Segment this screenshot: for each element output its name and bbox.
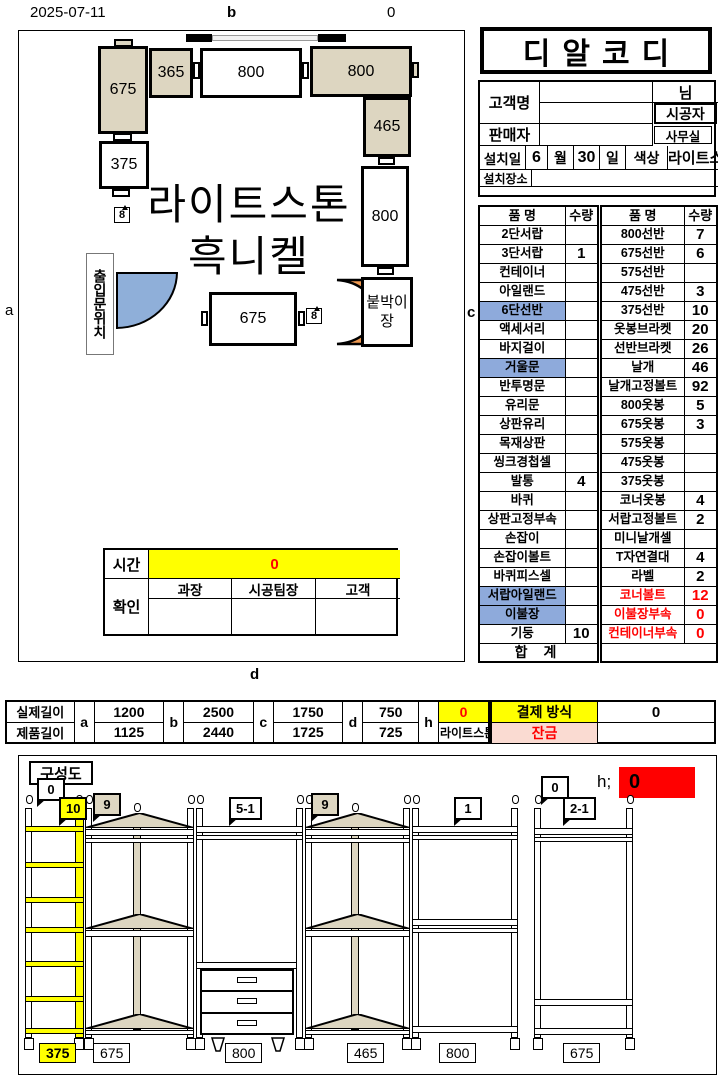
- cabinet-tab: [378, 157, 395, 165]
- item-qty: [565, 548, 598, 567]
- shelf-rail: [412, 919, 518, 926]
- item-name: 바지걸이: [479, 339, 565, 358]
- item-row: 라벨 2: [601, 567, 717, 586]
- item-qty: [684, 263, 717, 282]
- length-table: 실제길이 제품길이 a 1200 1125 b 2500 2440 c 1750…: [5, 700, 490, 744]
- unit-width-label: 800: [225, 1043, 262, 1063]
- item-qty: 26: [684, 339, 717, 358]
- item-row: 675선반 6: [601, 244, 717, 263]
- plan-unit-675-bottom: 675: [209, 292, 297, 346]
- builtin-closet-label-line2: 장: [380, 312, 394, 332]
- items-table-left: 품 명 수량 2단서랍 3단서랍 1 컨테이너: [478, 205, 599, 663]
- item-row: 옷봉브라켓 20: [601, 320, 717, 339]
- item-name: 미니날개셀: [601, 529, 684, 548]
- month-unit-label: 월: [548, 146, 574, 170]
- color-label: 색상: [626, 146, 668, 170]
- window-bar: [186, 34, 212, 42]
- shelf-rail: [305, 1030, 410, 1035]
- item-row: 서랍아일랜드: [479, 586, 598, 605]
- item-name: 475옷봉: [601, 453, 684, 472]
- item-qty: [684, 472, 717, 491]
- item-row: 선반브라켓 26: [601, 339, 717, 358]
- plan-unit-675-left: 675: [98, 46, 148, 134]
- window-rail: [212, 35, 318, 41]
- shelf-rail: [85, 1030, 194, 1035]
- length-b-product: 2440: [184, 723, 253, 743]
- item-qty: [565, 434, 598, 453]
- item-qty: [565, 567, 598, 586]
- item-row: 거울문: [479, 358, 598, 377]
- office-label: 사무실: [654, 126, 712, 144]
- dim-label-b: b: [227, 4, 236, 21]
- seller-label: 판매자: [480, 124, 540, 146]
- item-name: 바퀴: [479, 491, 565, 510]
- length-h-product: 라이트스톤: [439, 723, 488, 743]
- drawer-handle: [237, 998, 257, 1004]
- item-name: 날개: [601, 358, 684, 377]
- item-name: 상판유리: [479, 415, 565, 434]
- post-highlight: [75, 808, 84, 1038]
- item-qty: [684, 529, 717, 548]
- item-row: 손잡이볼트: [479, 548, 598, 567]
- callout-9a: 9: [93, 793, 121, 816]
- items-table-right: 품 명 수량 800선반 7 675선반 6 575선반: [600, 205, 718, 663]
- item-qty: [684, 434, 717, 453]
- item-name: 서랍아일랜드: [479, 586, 565, 605]
- item-row: 미니날개셀: [601, 529, 717, 548]
- plan-unit-800-right: 800: [310, 46, 412, 97]
- install-month-value[interactable]: 6: [526, 146, 548, 170]
- item-name: 손잡이볼트: [479, 548, 565, 567]
- item-row: 코너볼트 12: [601, 586, 717, 605]
- item-qty: 3: [684, 282, 717, 301]
- hang-rod: [305, 930, 410, 937]
- item-qty: 10: [684, 301, 717, 320]
- item-name: 575옷봉: [601, 434, 684, 453]
- item-qty: [565, 358, 598, 377]
- customer-name-field[interactable]: [540, 82, 653, 103]
- install-location-field[interactable]: [532, 170, 718, 187]
- confirm-col-manager: 과장: [149, 579, 232, 599]
- shelf-rail: [534, 999, 633, 1006]
- cabinet-tab: [201, 311, 208, 326]
- item-qty: 2: [684, 567, 717, 586]
- top-right-value: 0: [387, 4, 395, 21]
- item-row: 날개 46: [601, 358, 717, 377]
- shelf-rail: [196, 826, 303, 833]
- shelf-rail: [412, 928, 518, 933]
- item-row: 발통 4: [479, 472, 598, 491]
- callout-0b: 0: [541, 776, 569, 799]
- hang-rod: [85, 930, 194, 937]
- shelf-highlight: [25, 961, 84, 967]
- unit-width-label: 465: [347, 1043, 384, 1063]
- length-letter-d: d: [343, 702, 363, 742]
- shelf-rail: [196, 835, 303, 840]
- builtin-closet-box: 붙박이 장: [361, 277, 413, 347]
- item-name: 6단선반: [479, 301, 565, 320]
- callout-5-1: 5-1: [229, 797, 262, 820]
- item-name: 375옷봉: [601, 472, 684, 491]
- item-qty: [565, 491, 598, 510]
- item-name: 이불장: [479, 605, 565, 624]
- unit-width-label: 675: [93, 1043, 130, 1063]
- item-qty: 7: [684, 225, 717, 244]
- time-label: 시간: [105, 550, 149, 579]
- shelf-rail: [534, 1028, 633, 1035]
- item-qty: [565, 282, 598, 301]
- order-sheet: 2025-07-11 b 0 a c d 675 365 800 800 465…: [0, 0, 721, 1080]
- item-name: 선반브라켓: [601, 339, 684, 358]
- item-qty: [565, 320, 598, 339]
- length-a-actual: 1200: [95, 702, 164, 723]
- item-name: 서랍고정볼트: [601, 510, 684, 529]
- shelf-rail: [534, 828, 633, 835]
- color-value: 라이트스톤: [668, 146, 718, 170]
- item-qty: 2: [684, 510, 717, 529]
- item-name: 컨테이너: [479, 263, 565, 282]
- hang-rod: [85, 829, 194, 836]
- item-qty: 92: [684, 377, 717, 396]
- cabinet-tab: [113, 133, 132, 141]
- time-value: 0: [149, 550, 400, 579]
- item-row: 유리문: [479, 396, 598, 415]
- h-dim-value: 0: [619, 767, 695, 798]
- item-qty: 20: [684, 320, 717, 339]
- items-right-name-header: 품 명: [601, 206, 684, 225]
- shelf-rail: [412, 1026, 518, 1033]
- item-name: 375선반: [601, 301, 684, 320]
- callout-2-1: 2-1: [563, 797, 596, 820]
- item-row: 손잡이: [479, 529, 598, 548]
- product-length-label: 제품길이: [7, 723, 74, 743]
- item-qty: 4: [565, 472, 598, 491]
- item-qty: 46: [684, 358, 717, 377]
- drawer-foot: [269, 1037, 287, 1053]
- unit-width-label: 800: [439, 1043, 476, 1063]
- item-qty: [565, 586, 598, 605]
- length-letter-h: h: [419, 702, 439, 742]
- item-qty: [565, 301, 598, 320]
- item-qty: [565, 225, 598, 244]
- actual-length-label: 실제길이: [7, 702, 74, 723]
- customer-name-field2[interactable]: [540, 103, 653, 124]
- seller-field[interactable]: [540, 124, 653, 146]
- item-name: 675선반: [601, 244, 684, 263]
- item-name: 675옷봉: [601, 415, 684, 434]
- item-row: 475선반 3: [601, 282, 717, 301]
- payment-method-value: 0: [598, 702, 714, 723]
- item-name: 바퀴피스셀: [479, 567, 565, 586]
- item-row: 상판유리: [479, 415, 598, 434]
- item-name: 씽크경첩셀: [479, 453, 565, 472]
- installer-label: 시공자: [654, 103, 717, 124]
- item-name: 날개고정볼트: [601, 377, 684, 396]
- item-name: 거울문: [479, 358, 565, 377]
- confirm-sign-customer[interactable]: [316, 599, 400, 634]
- length-d-actual: 750: [363, 702, 418, 723]
- item-name: 발통: [479, 472, 565, 491]
- balance-value-field[interactable]: [598, 723, 714, 743]
- cabinet-tab: [193, 62, 200, 79]
- item-row: 바지걸이: [479, 339, 598, 358]
- dim-label-a: a: [5, 302, 13, 319]
- hang-rod: [305, 829, 410, 836]
- item-name: 475선반: [601, 282, 684, 301]
- item-row: 675옷봉 3: [601, 415, 717, 434]
- item-name: 800옷봉: [601, 396, 684, 415]
- item-qty: [565, 377, 598, 396]
- customer-name-label: 고객명: [480, 82, 540, 124]
- item-row: 아일랜드: [479, 282, 598, 301]
- item-row: 375옷봉: [601, 472, 717, 491]
- install-day-value[interactable]: 30: [574, 146, 600, 170]
- item-name: 아일랜드: [479, 282, 565, 301]
- total-row-label: 합 계: [479, 643, 598, 662]
- unit-width-label: 675: [563, 1043, 600, 1063]
- length-d-product: 725: [363, 723, 418, 743]
- item-name: 반투명문: [479, 377, 565, 396]
- window-bar: [318, 34, 346, 42]
- cabinet-tab: [112, 189, 130, 197]
- item-name: 코너옷봉: [601, 491, 684, 510]
- length-letter-c: c: [254, 702, 274, 742]
- plan-unit-465: 465: [363, 97, 411, 157]
- honorific-label: 님: [653, 82, 718, 103]
- unit-width-label: 375: [39, 1043, 76, 1063]
- item-row: 6단선반: [479, 301, 598, 320]
- drawer-top: [196, 962, 297, 969]
- shelf-highlight: [25, 897, 84, 903]
- item-row: 기둥 10: [479, 624, 598, 643]
- item-qty: [684, 453, 717, 472]
- item-qty: 5: [684, 396, 717, 415]
- item-row: T자연결대 4: [601, 548, 717, 567]
- item-row: 375선반 10: [601, 301, 717, 320]
- balance-label: 잔금: [492, 723, 598, 743]
- item-name: T자연결대: [601, 548, 684, 567]
- length-h-actual: 0: [439, 702, 488, 723]
- length-letter-a: a: [75, 702, 95, 742]
- plan-unit-365: 365: [149, 48, 193, 98]
- date-label: 2025-07-11: [30, 4, 106, 21]
- drawer: [202, 1014, 292, 1033]
- builtin-closet-label-line1: 붙박이: [366, 293, 407, 313]
- item-qty: 6: [684, 244, 717, 263]
- confirm-sign-team-lead[interactable]: [232, 599, 316, 634]
- item-qty: 4: [684, 548, 717, 567]
- item-row: 코너옷봉 4: [601, 491, 717, 510]
- drawer-handle: [237, 1020, 257, 1026]
- item-qty: [565, 453, 598, 472]
- item-row: 컨테이너: [479, 263, 598, 282]
- item-row: 475옷봉: [601, 453, 717, 472]
- item-qty: 10: [565, 624, 598, 643]
- callout-1: 1: [454, 797, 482, 820]
- item-name: 옷봉브라켓: [601, 320, 684, 339]
- item-name: 기둥: [479, 624, 565, 643]
- length-c-product: 1725: [274, 723, 343, 743]
- item-qty: [565, 529, 598, 548]
- item-qty: [565, 415, 598, 434]
- item-row: 날개고정볼트 92: [601, 377, 717, 396]
- items-right-qty-header: 수량: [684, 206, 717, 225]
- item-name: 상판고정부속: [479, 510, 565, 529]
- item-qty: [565, 396, 598, 415]
- item-name: 목재상판: [479, 434, 565, 453]
- item-name: 코너볼트: [601, 586, 684, 605]
- item-row: 목재상판: [479, 434, 598, 453]
- callout-10: 10: [59, 797, 87, 820]
- item-name: 유리문: [479, 396, 565, 415]
- empty-footer-row: [601, 643, 717, 662]
- drawer-unit: [200, 969, 294, 1035]
- shelf-highlight: [25, 927, 84, 933]
- shelf-rail: [412, 835, 518, 840]
- item-name: 2단서랍: [479, 225, 565, 244]
- plan-unit-800-top: 800: [200, 48, 302, 98]
- item-name: 이불장부속: [601, 605, 684, 624]
- item-row: 이불장: [479, 605, 598, 624]
- item-row: 바퀴: [479, 491, 598, 510]
- length-a-product: 1125: [95, 723, 164, 743]
- item-name: 800선반: [601, 225, 684, 244]
- hang-rod: [85, 838, 194, 843]
- item-qty: 12: [684, 586, 717, 605]
- shelf-rail: [412, 826, 518, 833]
- install-date-label: 설치일: [480, 146, 526, 170]
- item-row: 상판고정부속: [479, 510, 598, 529]
- confirm-label: 확인: [105, 579, 149, 634]
- length-letter-b: b: [164, 702, 184, 742]
- day-unit-label: 일: [600, 146, 626, 170]
- item-qty: [565, 263, 598, 282]
- item-qty: 0: [684, 605, 717, 624]
- h-dim-label: h;: [597, 772, 611, 792]
- confirm-col-team-lead: 시공팀장: [232, 579, 316, 599]
- dim-label-c: c: [467, 304, 475, 321]
- item-qty: 0: [684, 624, 717, 643]
- shelf-highlight: [25, 862, 84, 868]
- length-c-actual: 1750: [274, 702, 343, 723]
- item-qty: 1: [565, 244, 598, 263]
- payment-table: 결제 방식 0 잔금: [490, 700, 716, 744]
- cabinet-tab: [298, 311, 305, 326]
- item-row: 575선반: [601, 263, 717, 282]
- item-row: 800선반 7: [601, 225, 717, 244]
- drawer: [202, 971, 292, 992]
- item-row: 바퀴피스셀: [479, 567, 598, 586]
- length-b-actual: 2500: [184, 702, 253, 723]
- corner-shelf: [305, 914, 410, 929]
- payment-method-label: 결제 방식: [492, 702, 598, 723]
- shelf-highlight: [25, 996, 84, 1002]
- composition-panel: 구성도 0 10 9 5-1 9 1 0 2-1 h; 0: [18, 755, 717, 1075]
- item-row: 575옷봉: [601, 434, 717, 453]
- items-left-name-header: 품 명: [479, 206, 565, 225]
- cabinet-tab: [302, 62, 309, 79]
- items-left-qty-header: 수량: [565, 206, 598, 225]
- item-qty: [565, 605, 598, 624]
- shelf-rail: [534, 837, 633, 842]
- item-name: 컨테이너부속: [601, 624, 684, 643]
- entrance-location-label: 출입문위치: [86, 253, 114, 355]
- customer-info-table: 고객명 님 시공자 판매자 사무실 설치일 6 월 30 일 색상 라이트스톤 …: [478, 80, 716, 197]
- time-confirm-table: 시간 0 확인 과장 시공팀장 고객: [103, 548, 398, 636]
- item-row: 2단서랍: [479, 225, 598, 244]
- dim-label-d: d: [250, 666, 259, 683]
- callout-9b: 9: [311, 793, 339, 816]
- item-row: 800옷봉 5: [601, 396, 717, 415]
- plan-unit-800-mid: 800: [361, 166, 409, 267]
- item-row: 씽크경첩셀: [479, 453, 598, 472]
- item-row: 이불장부속 0: [601, 605, 717, 624]
- entrance-door-swing: [116, 272, 178, 329]
- item-row: 3단서랍 1: [479, 244, 598, 263]
- confirm-sign-manager[interactable]: [149, 599, 232, 634]
- item-qty: 4: [684, 491, 717, 510]
- cabinet-tab: [377, 267, 394, 275]
- item-qty: 3: [684, 415, 717, 434]
- item-row: 반투명문: [479, 377, 598, 396]
- item-row: 서랍고정볼트 2: [601, 510, 717, 529]
- corner-shelf: [305, 1014, 410, 1029]
- drawer: [202, 992, 292, 1013]
- install-location-label: 설치장소: [480, 170, 532, 187]
- post: [296, 808, 303, 1038]
- plan-callout-8-left: 8: [114, 207, 130, 223]
- item-name: 액세서리: [479, 320, 565, 339]
- hang-rod: [305, 838, 410, 843]
- item-qty: [565, 510, 598, 529]
- item-name: 손잡이: [479, 529, 565, 548]
- corner-shelf: [85, 1014, 194, 1029]
- confirm-col-customer: 고객: [316, 579, 400, 599]
- shelf-highlight: [25, 826, 84, 832]
- item-name: 3단서랍: [479, 244, 565, 263]
- post: [25, 808, 32, 1038]
- shelf-highlight: [25, 1028, 84, 1034]
- drawer-handle: [237, 977, 257, 983]
- item-row: 액세서리: [479, 320, 598, 339]
- corner-shelf: [85, 914, 194, 929]
- cabinet-tab: [412, 62, 419, 78]
- item-qty: [565, 339, 598, 358]
- item-name: 라벨: [601, 567, 684, 586]
- item-name: 575선반: [601, 263, 684, 282]
- company-title: 디알코디: [480, 27, 712, 74]
- item-row: 컨테이너부속 0: [601, 624, 717, 643]
